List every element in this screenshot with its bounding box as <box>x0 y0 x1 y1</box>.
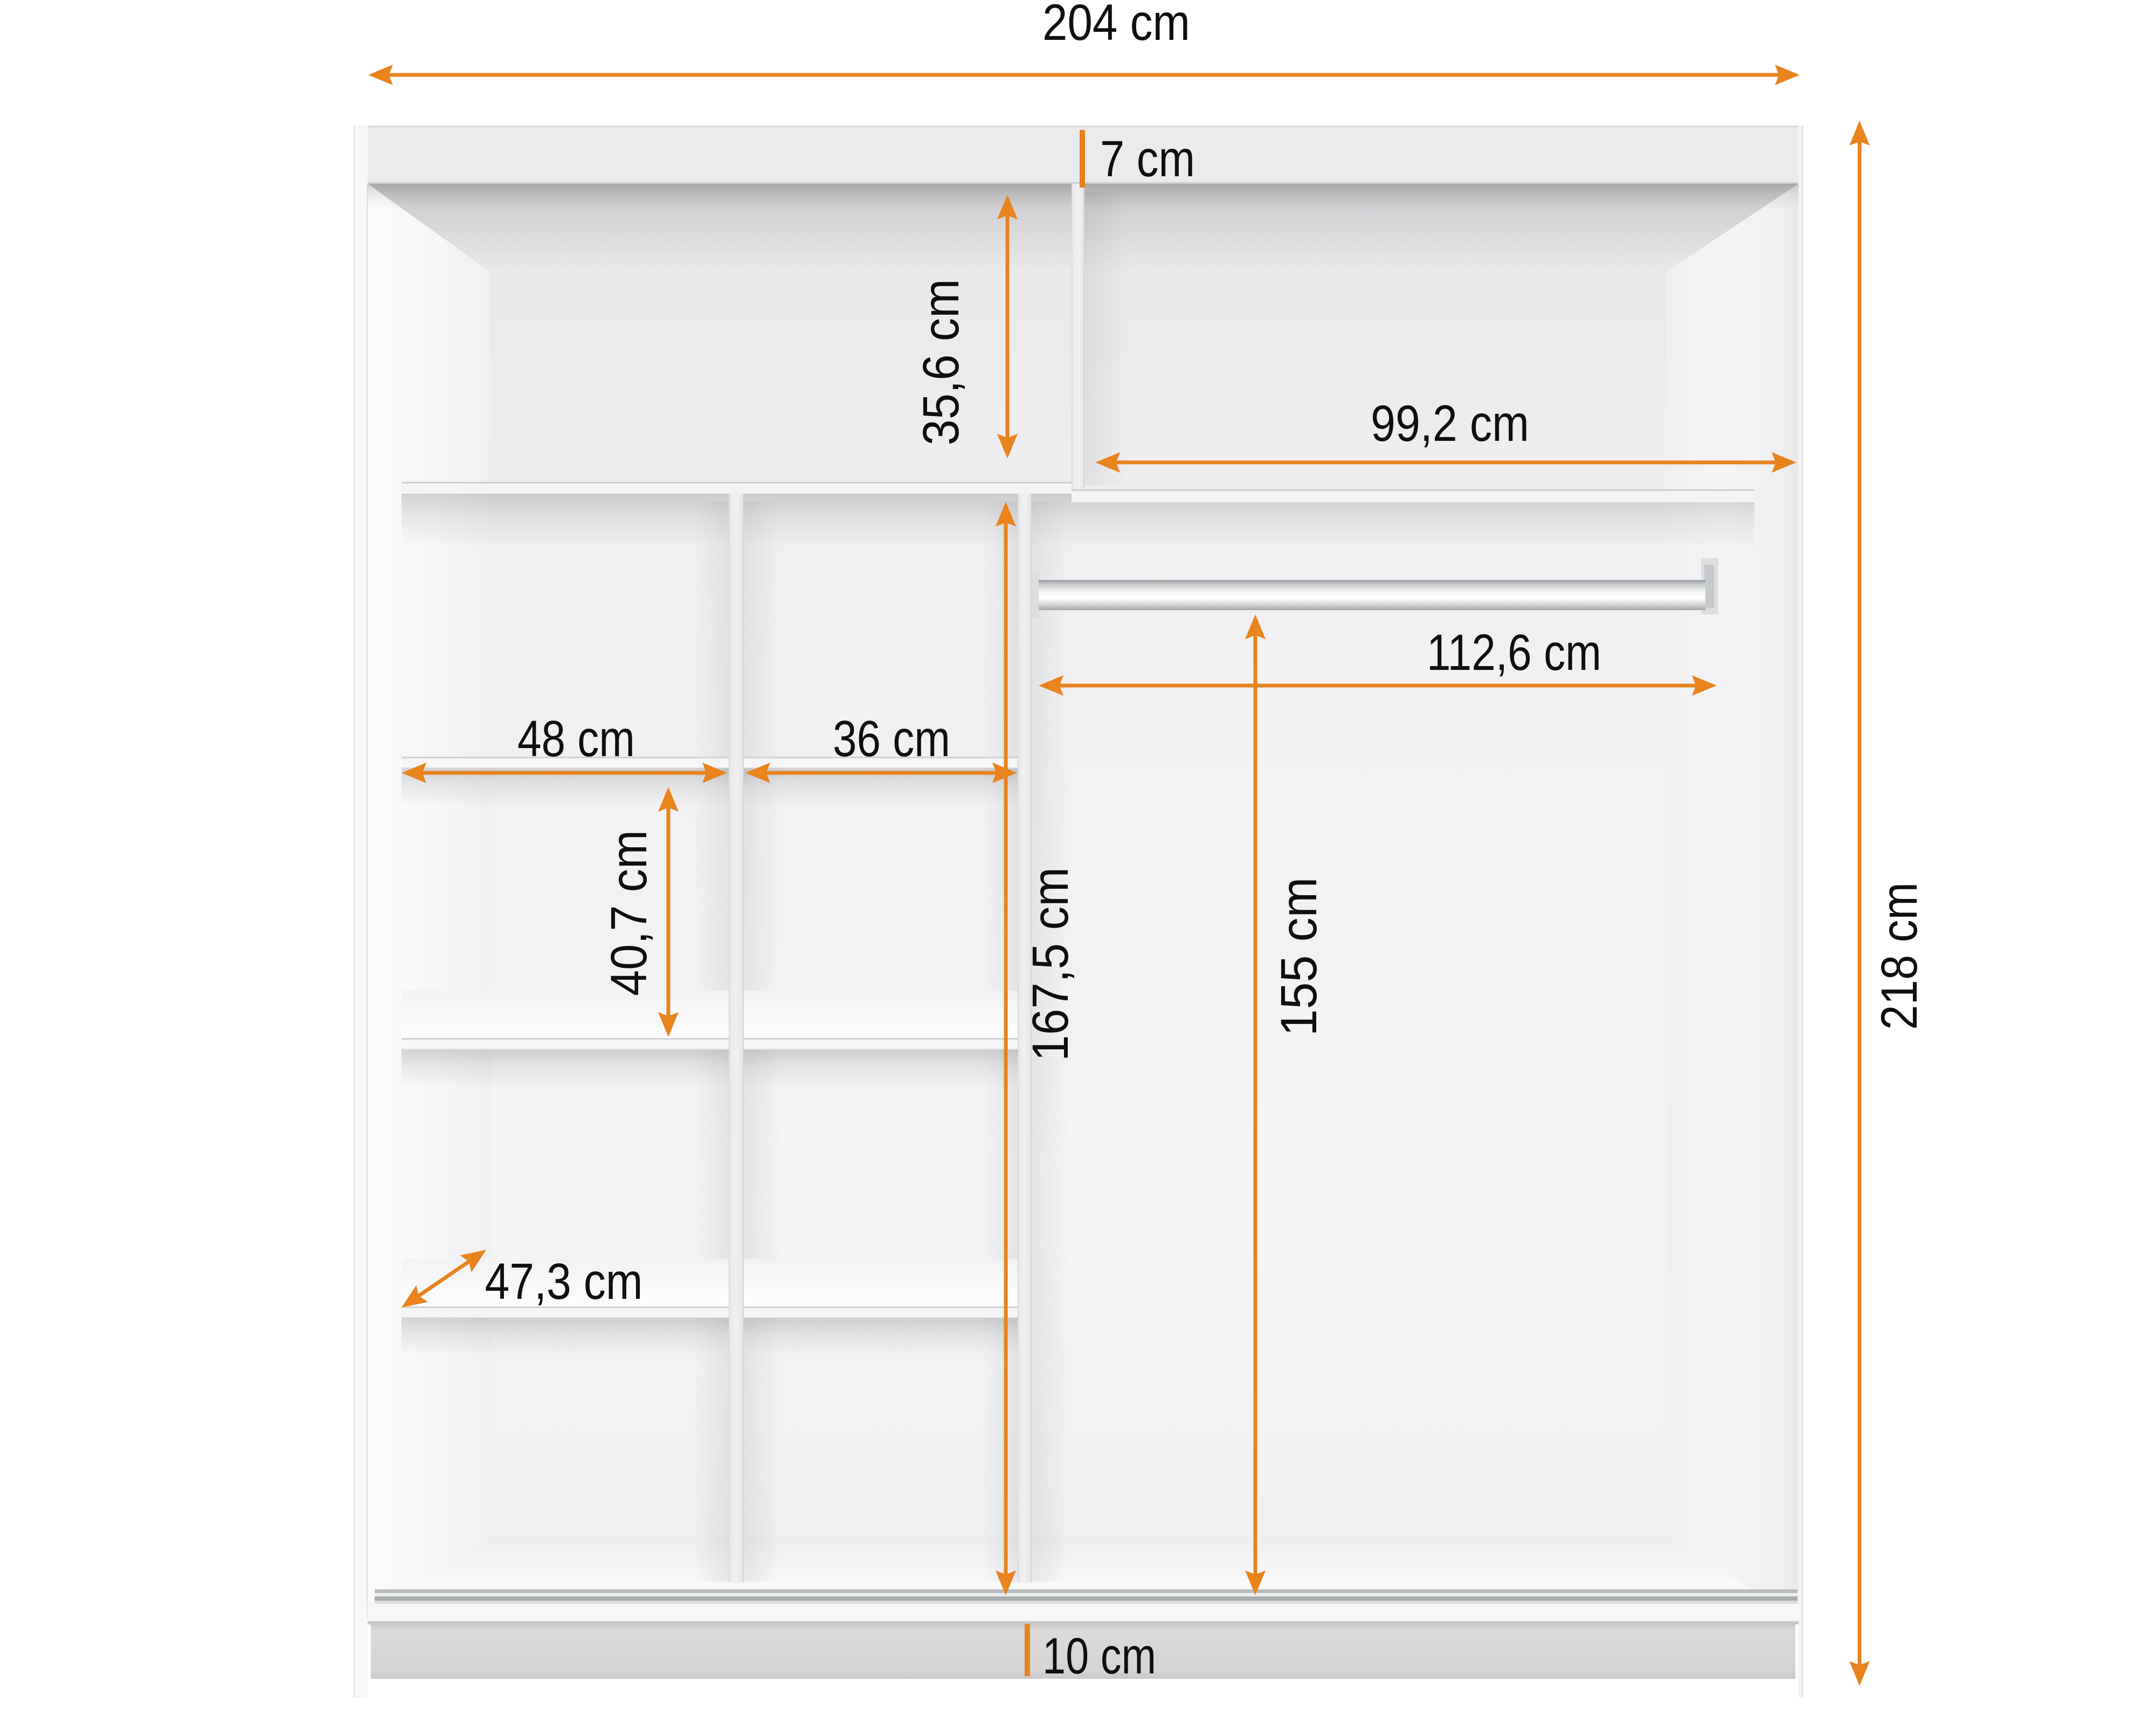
svg-text:40,7 cm: 40,7 cm <box>600 830 658 996</box>
svg-text:35,6 cm: 35,6 cm <box>913 279 970 446</box>
svg-text:48 cm: 48 cm <box>517 710 635 767</box>
svg-text:10 cm: 10 cm <box>1042 1628 1156 1685</box>
svg-text:112,6 cm: 112,6 cm <box>1427 624 1601 681</box>
svg-text:155 cm: 155 cm <box>1270 877 1328 1036</box>
svg-text:218 cm: 218 cm <box>1871 882 1928 1030</box>
svg-text:47,3 cm: 47,3 cm <box>485 1253 643 1310</box>
svg-text:99,2 cm: 99,2 cm <box>1371 395 1529 452</box>
svg-text:204 cm: 204 cm <box>1042 0 1190 51</box>
svg-text:36 cm: 36 cm <box>833 710 950 767</box>
svg-text:167,5 cm: 167,5 cm <box>1022 867 1079 1061</box>
svg-text:7 cm: 7 cm <box>1100 130 1195 188</box>
